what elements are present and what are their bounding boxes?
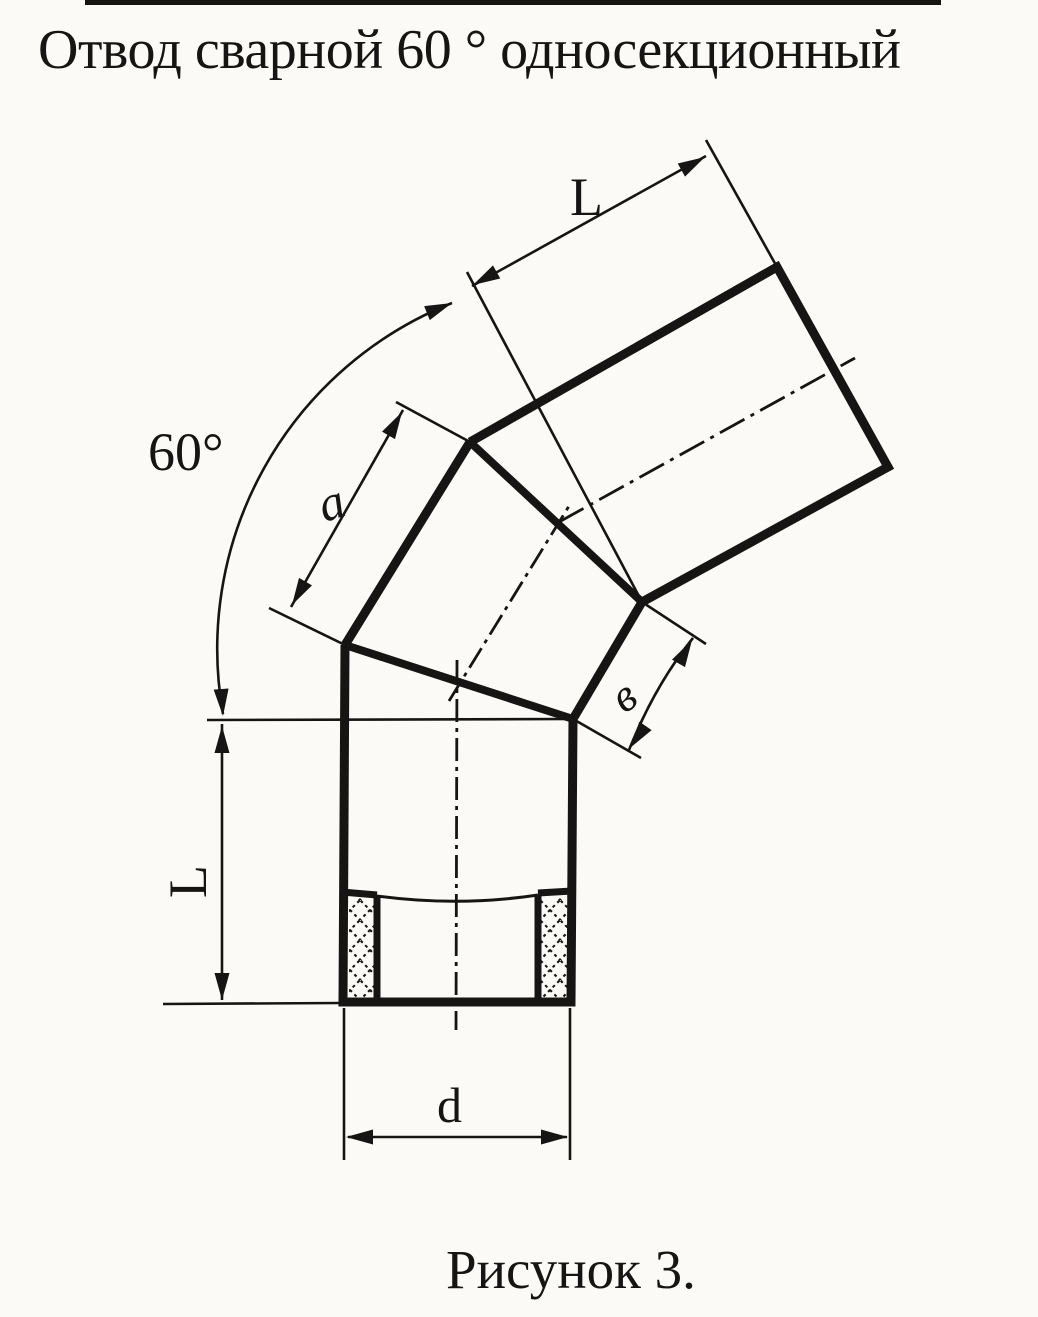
label-L-left: L: [158, 865, 218, 898]
arrowhead-L-left-top: [215, 726, 230, 753]
middle-section-outer-edge: [345, 442, 470, 645]
extension-line-horizontal-top: [207, 719, 573, 720]
elbow-technical-drawing: L 60° a в L d: [0, 0, 1038, 1317]
extension-line-horizontal-bottom: [163, 1003, 341, 1004]
extension-line-a-top: [396, 402, 470, 442]
arrowhead-L-top-right: [678, 150, 709, 176]
label-L-top: L: [570, 167, 603, 227]
arrowhead-d-right: [541, 1130, 568, 1145]
socket-top-edge-right: [538, 891, 572, 893]
extension-line-b-bottom: [573, 719, 641, 758]
arrowhead-a-top: [382, 408, 408, 439]
extension-line-L-top-left: [467, 272, 642, 602]
extension-line-L-top-right: [706, 140, 777, 267]
arrowhead-arc-bottom: [214, 689, 231, 717]
weld-seam-bottom: [345, 645, 573, 719]
hatched-wall-right: [541, 897, 568, 998]
hatched-wall-left: [349, 897, 374, 998]
centerline-middle-section: [449, 506, 569, 701]
label-d: d: [437, 1077, 462, 1133]
extension-line-a-bottom: [269, 608, 345, 645]
extension-line-b-top: [642, 602, 706, 644]
top-pipe-outline: [470, 267, 888, 602]
label-b: в: [601, 669, 647, 722]
scanned-drawing-page: Отвод сварной 60 ° односекционный: [0, 0, 1038, 1317]
label-bend-angle: 60°: [148, 422, 224, 482]
arrowhead-a-bottom: [286, 578, 312, 609]
arrowhead-b-bottom: [624, 722, 652, 753]
socket-top-edge-left: [342, 892, 377, 895]
label-a: a: [310, 472, 351, 533]
arrowhead-d-left: [346, 1130, 373, 1145]
centerline-vertical-pipe: [456, 660, 457, 1030]
weld-seam-top: [470, 442, 642, 602]
scan-edge-artifact: [85, 0, 941, 5]
arrowhead-arc-top: [424, 296, 455, 320]
figure-caption: Рисунок 3.: [446, 1238, 696, 1301]
arrowhead-L-left-bottom: [215, 973, 230, 1000]
centerline-top-pipe: [559, 358, 855, 522]
